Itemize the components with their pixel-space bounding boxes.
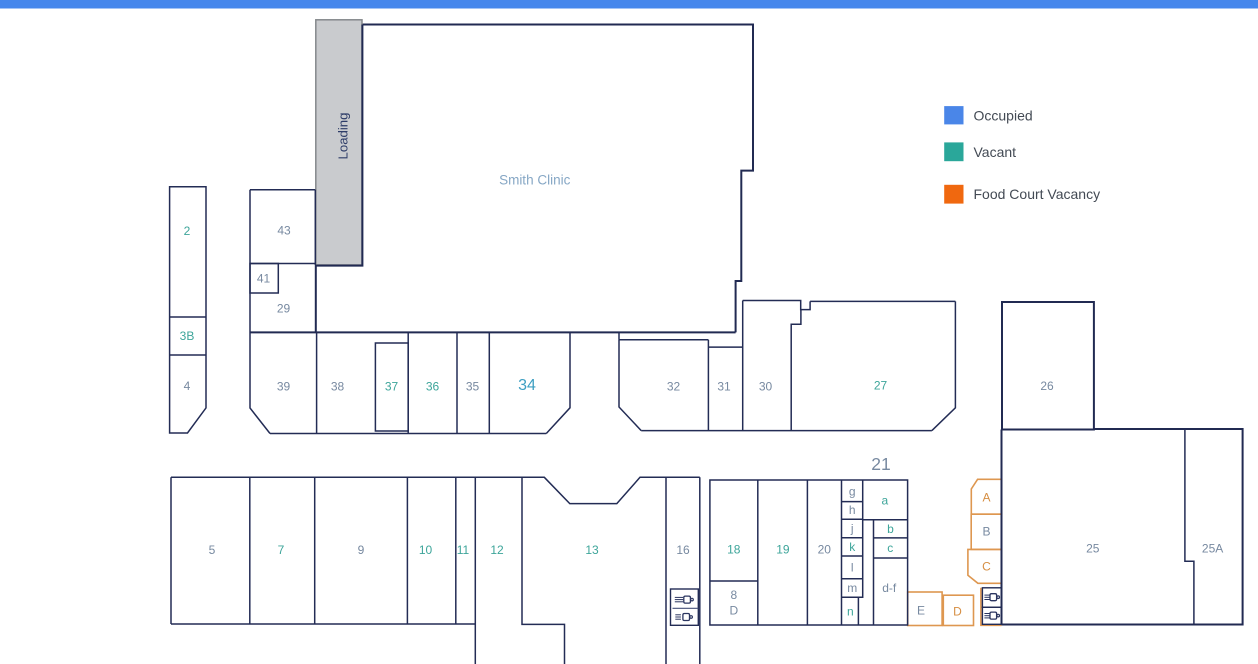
svg-text:3B: 3B	[180, 329, 195, 343]
svg-text:36: 36	[426, 380, 440, 394]
svg-text:25: 25	[1086, 542, 1100, 556]
svg-text:26: 26	[1040, 379, 1054, 393]
svg-text:41: 41	[257, 272, 271, 286]
svg-text:29: 29	[277, 302, 291, 316]
svg-text:34: 34	[518, 377, 536, 394]
svg-text:25A: 25A	[1202, 542, 1223, 556]
svg-text:31: 31	[717, 380, 731, 394]
svg-text:Loading: Loading	[336, 113, 351, 160]
svg-text:16: 16	[676, 543, 690, 557]
svg-text:12: 12	[490, 543, 504, 557]
svg-text:b: b	[887, 522, 894, 536]
svg-text:13: 13	[585, 543, 599, 557]
svg-text:h: h	[849, 503, 856, 517]
svg-text:E: E	[917, 604, 925, 618]
svg-text:B: B	[982, 525, 990, 539]
svg-text:38: 38	[331, 380, 345, 394]
svg-text:Occupied: Occupied	[974, 107, 1033, 123]
svg-text:30: 30	[759, 380, 773, 394]
svg-text:35: 35	[466, 380, 480, 394]
svg-text:19: 19	[776, 543, 790, 557]
svg-text:j: j	[850, 522, 854, 536]
svg-text:21: 21	[871, 454, 890, 474]
svg-text:a: a	[882, 493, 889, 507]
svg-text:5: 5	[209, 543, 216, 557]
svg-text:39: 39	[277, 380, 291, 394]
svg-text:10: 10	[419, 543, 433, 557]
svg-text:k: k	[849, 540, 856, 554]
svg-text:c: c	[887, 541, 893, 555]
svg-text:9: 9	[358, 543, 365, 557]
svg-text:7: 7	[278, 543, 285, 557]
svg-text:11: 11	[457, 543, 470, 557]
svg-text:27: 27	[874, 379, 888, 393]
svg-text:2: 2	[184, 224, 191, 238]
svg-text:Food Court Vacancy: Food Court Vacancy	[974, 186, 1101, 202]
svg-text:D: D	[729, 604, 738, 618]
svg-text:Smith Clinic: Smith Clinic	[499, 172, 571, 187]
svg-text:4: 4	[184, 379, 191, 393]
svg-text:l: l	[851, 560, 854, 574]
svg-text:D: D	[953, 605, 962, 619]
svg-text:m: m	[847, 581, 857, 595]
svg-text:20: 20	[818, 543, 832, 557]
svg-text:C: C	[982, 560, 991, 574]
svg-text:n: n	[847, 604, 854, 618]
svg-text:Vacant: Vacant	[974, 144, 1017, 160]
svg-text:43: 43	[277, 224, 291, 238]
svg-text:d-f: d-f	[882, 581, 897, 595]
svg-text:g: g	[849, 484, 856, 498]
svg-text:32: 32	[667, 380, 681, 394]
svg-text:18: 18	[727, 543, 741, 557]
svg-text:A: A	[982, 491, 990, 505]
svg-text:37: 37	[385, 380, 399, 394]
svg-text:8: 8	[730, 588, 737, 602]
